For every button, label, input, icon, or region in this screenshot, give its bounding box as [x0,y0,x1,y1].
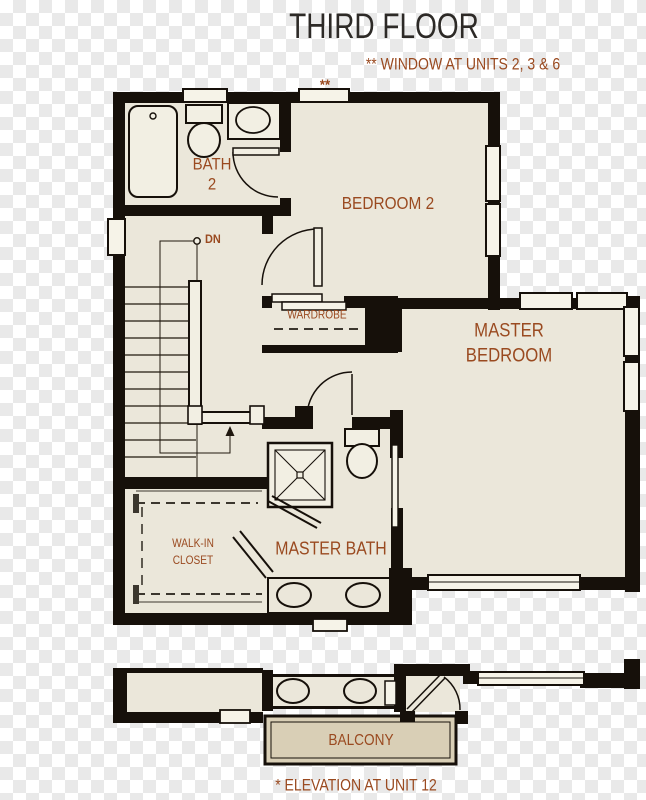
room-label-balcony: BALCONY [328,732,393,750]
toilet-bowl-bath2 [188,123,220,157]
window-master-right-2 [624,362,639,411]
railing-post-right [250,406,264,424]
railing-post-left [188,406,202,424]
closet-line1: WALK-IN [172,536,214,553]
window-master-top-2 [577,293,627,309]
window-left [108,219,125,255]
room-label-bedroom2: BEDROOM 2 [342,193,434,213]
wall-bath2-bottom [113,205,291,216]
master-line2: BEDROOM [466,344,552,369]
window-bedroom2-right-1 [486,146,500,201]
vent-bump-lower [220,710,250,723]
toilet-bowl-master [347,444,377,478]
cased-opening-master-bath [392,445,398,527]
closet-line2: CLOSET [172,553,214,570]
window-bedroom2-right-2 [486,204,500,256]
window-note: ** WINDOW AT UNITS 2, 3 & 6 [366,56,560,75]
window-top-a [183,89,227,102]
bedroom2-door-leaf [314,228,322,286]
floor-plan-drawing [0,0,646,800]
wall-wardrobe-bottom [262,345,398,353]
room-label-wardrobe: WARDROBE [287,309,346,322]
stairs-dn-label: DN [205,234,221,246]
wardrobe-slider-1 [272,294,322,302]
bath2-door-leaf [233,148,279,155]
room-label-bath2: BATH 2 [193,154,232,193]
bath2-line1: BATH [193,154,232,174]
stair-railing-vertical [189,281,201,424]
dn-node [194,238,200,244]
elevation-note: * ELEVATION AT UNIT 12 [275,777,437,796]
wall-left [113,92,125,625]
room-label-master-bedroom: MASTER BEDROOM [466,319,552,368]
toilet-tank-bath2 [186,105,222,123]
floor-lower-strip [127,672,263,713]
bath2-line2: 2 [193,174,232,194]
master-line1: MASTER [466,319,552,344]
window-master-top-1 [520,293,572,309]
wall-bottom [113,613,412,625]
window-master-right-1 [624,307,639,356]
wall-closet-divider [113,477,268,489]
window-marker-asterisks: ** [320,76,330,93]
room-label-walk-in-closet: WALK-IN CLOSET [172,536,214,571]
jamb-lower [385,681,396,705]
floor-plan-page: THIRD FLOOR ** WINDOW AT UNITS 2, 3 & 6 … [0,0,646,800]
room-label-master-bath: MASTER BATH [275,539,386,560]
page-title: THIRD FLOOR [289,7,479,47]
vent-bump-main [313,619,347,631]
